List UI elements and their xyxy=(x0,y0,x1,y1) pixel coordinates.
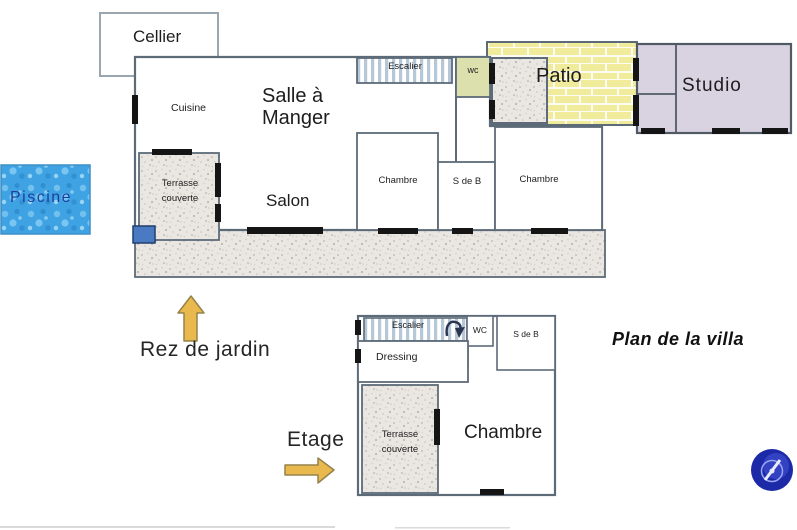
door-marker xyxy=(215,204,221,222)
salle-de-bain-ground-label: S de B xyxy=(440,177,494,187)
door-marker xyxy=(762,128,788,134)
room-wc-ground xyxy=(456,57,490,97)
ground-floor-caption: Rez de jardin xyxy=(140,339,270,361)
door-marker xyxy=(152,149,192,155)
villa-floor-plan: Cellier Cuisine Salle à Manger Salon Ter… xyxy=(0,0,797,530)
door-marker xyxy=(247,227,323,234)
chambre-left-label: Chambre xyxy=(367,176,429,186)
chambre-upper-label: Chambre xyxy=(464,423,542,443)
cuisine-label: Cuisine xyxy=(171,103,206,114)
door-marker xyxy=(489,100,495,119)
door-marker xyxy=(378,228,418,234)
patio-label: Patio xyxy=(536,66,582,87)
wc-upper-label: WC xyxy=(468,326,492,335)
cellier-label: Cellier xyxy=(133,28,181,46)
room-salle-de-bain-ground xyxy=(438,162,495,230)
salle-de-bain-upper-label: S de B xyxy=(500,330,552,339)
room-salle-de-bain-upper xyxy=(497,316,555,370)
dressing-label: Dressing xyxy=(376,352,417,363)
door-marker xyxy=(452,228,473,234)
door-marker xyxy=(480,489,504,495)
studio-label: Studio xyxy=(682,76,742,96)
up-arrow-icon xyxy=(178,296,204,341)
escalier-upper-label: Escalier xyxy=(376,321,440,330)
door-marker xyxy=(712,128,740,134)
wc-ground-label: wc xyxy=(459,66,487,75)
agency-logo-icon xyxy=(751,449,793,491)
terrasse-ground-label-line1: Terrasse xyxy=(149,179,211,189)
dining-room-label-line1: Salle à xyxy=(262,86,323,107)
terrasse-ground-label-line2: couverte xyxy=(149,194,211,204)
scan-artifact xyxy=(0,526,510,529)
door-marker xyxy=(531,228,568,234)
door-marker xyxy=(355,349,361,363)
piscine-label: Piscine xyxy=(10,190,72,207)
salon-label: Salon xyxy=(266,192,309,210)
door-marker xyxy=(633,95,639,126)
page-title: Plan de la villa xyxy=(612,330,744,349)
door-marker xyxy=(215,163,221,197)
escalier-ground-label: Escalier xyxy=(374,62,436,72)
door-marker xyxy=(132,95,138,124)
terrasse-upper-label-line2: couverte xyxy=(364,445,436,455)
upper-floor-caption: Etage xyxy=(287,429,344,451)
dining-room-label-line2: Manger xyxy=(262,108,330,129)
door-marker xyxy=(355,320,361,335)
terrasse-upper-label-line1: Terrasse xyxy=(364,430,436,440)
door-marker xyxy=(633,58,639,81)
door-marker xyxy=(641,128,665,134)
pool-equipment-square xyxy=(133,226,155,243)
door-marker xyxy=(489,63,495,84)
right-arrow-icon xyxy=(285,458,334,483)
chambre-right-label: Chambre xyxy=(508,175,570,185)
